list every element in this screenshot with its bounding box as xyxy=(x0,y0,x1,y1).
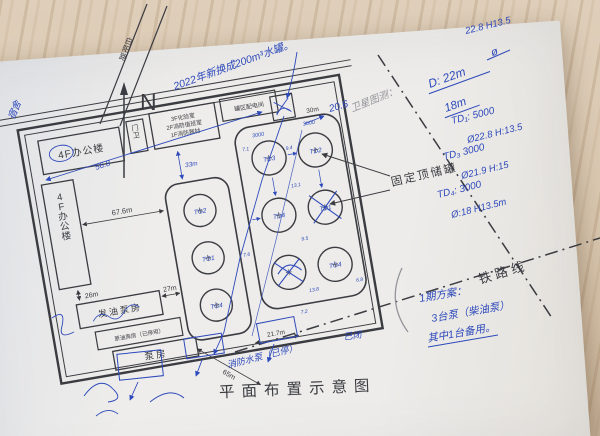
tank-label-td1: TD1 xyxy=(319,204,333,213)
site-group: 4F办公楼 门卫 3F化验室 2F消防值班室 1F消防器材 罐区配电间 30m … xyxy=(0,60,402,424)
dim-30m: 30m xyxy=(306,106,320,115)
pencil-note-satellite: 卫星图测： xyxy=(349,85,400,115)
drawing-title: 平面布置示意图 xyxy=(219,376,377,402)
ink-dim: 7.1 xyxy=(242,146,250,153)
ink-dim: 9.4 xyxy=(285,145,293,152)
ink-scribble-tank xyxy=(274,258,304,286)
ink-dim: 7.6 xyxy=(243,252,251,259)
pump-house-label: 泵房 xyxy=(144,347,169,363)
tank-label-tg2: TG2 xyxy=(193,207,207,216)
dim-27m: 27m xyxy=(163,285,178,294)
tank-label-td4: TD4 xyxy=(273,212,287,221)
gate-label: 门卫 xyxy=(131,123,141,140)
left-tanks: TG2 TG1 TG4 xyxy=(181,192,234,324)
ink-dim: 6.8 xyxy=(356,277,364,284)
ink-dim: 13.8 xyxy=(309,286,320,294)
power-room-label: 罐区配电间 xyxy=(234,100,265,113)
tank-label-tg4: TG4 xyxy=(210,302,224,311)
tank-label-tg1: TG1 xyxy=(202,255,216,264)
right-tanks: TD3 TD2 TD4 TD1 TG4 xyxy=(249,130,354,292)
ink-note-td1-spec: Ø22.8 H:13.5 xyxy=(465,121,524,146)
office-top-label: 4F办公楼 xyxy=(57,141,105,162)
ink-note-d-num-group: D: 22m xyxy=(423,56,490,93)
ink-dim: 9.5 xyxy=(301,235,309,242)
tank-callout-label: 固定顶储罐 xyxy=(390,160,459,189)
ink-sketch-arrow-1 xyxy=(130,382,138,400)
dim-65m: 65m xyxy=(221,369,236,382)
dim-line-26m xyxy=(78,290,80,300)
ink-dim-33m: 33m xyxy=(185,160,199,169)
office-left-label: 4F办公楼 xyxy=(54,191,72,242)
ink-note-td3-spec: Ø21.9 H:15 xyxy=(459,159,510,182)
old-depot-label: 原油库房（已停用） xyxy=(114,326,165,342)
north-label: N xyxy=(140,89,157,115)
dim-217m: 21.7m xyxy=(267,329,286,339)
ink-dim-line-33m xyxy=(178,151,183,179)
ink-line-568 xyxy=(46,112,262,180)
pencil-squiggle xyxy=(395,268,408,332)
ink-tank-arrows xyxy=(242,150,325,220)
ink-cross-td1 xyxy=(309,191,341,223)
dim-676m: 67.6m xyxy=(111,205,133,217)
ink-note-568: 56.8 xyxy=(94,158,112,172)
railway-label: 铁路线 xyxy=(476,258,529,287)
ink-dim: 13.1 xyxy=(291,182,302,190)
road-label: 白阳路 xyxy=(118,35,135,63)
ink-note-closed: 已闭 xyxy=(343,329,363,342)
ink-note-td4-spec: Ø:18 H13.5m xyxy=(449,197,508,222)
ink-note-plan2: 3台泵（柴油泵） xyxy=(430,299,510,325)
tank-label-td2: TD2 xyxy=(309,147,323,156)
ink-note-td4: TD₄: 3000 xyxy=(436,179,483,201)
site-plan-drawing: 4F办公楼 门卫 3F化验室 2F消防值班室 1F消防器材 罐区配电间 30m … xyxy=(0,0,600,436)
ink-note-spec-top: 22.8 H13.5 xyxy=(463,15,512,37)
ink-note-dorm: 宿舍 xyxy=(6,98,25,122)
dispatch-pump-label: 发油泵房 xyxy=(97,301,142,319)
photo-of-site-plan: 4F办公楼 门卫 3F化验室 2F消防值班室 1F消防器材 罐区配电间 30m … xyxy=(0,0,600,436)
dim-26m: 26m xyxy=(84,291,99,300)
ink-dim: 7.2 xyxy=(300,309,308,316)
ink-sketch-arrow-2 xyxy=(196,360,202,376)
north-arrow-head xyxy=(120,82,128,95)
ink-note-td3: TD₃ 3000 xyxy=(442,142,486,163)
ink-3000-a: 3000 xyxy=(252,131,266,139)
tank-label-tg4b: TG4 xyxy=(329,261,343,270)
ink-note-plan1: 1期方案： xyxy=(418,285,467,305)
